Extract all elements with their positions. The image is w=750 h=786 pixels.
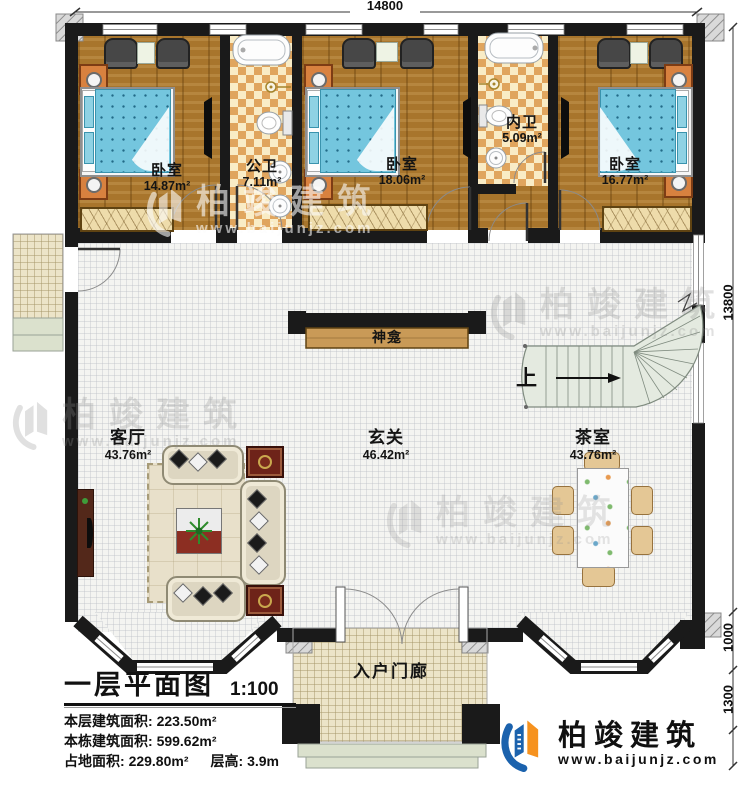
room-label-tea: 茶室 43.76m²: [553, 428, 633, 462]
chair: [631, 486, 653, 515]
stat-building-area: 本栋建筑面积: 599.62m²: [64, 731, 364, 751]
stat-pair: 占地面积: 229.80m²: [64, 751, 189, 771]
plan-title: 一层平面图: [64, 672, 214, 699]
staircase: [522, 294, 703, 409]
stat-label: 层高:: [211, 753, 244, 769]
title-underline-thin: [64, 707, 296, 708]
tv: [463, 97, 471, 159]
title-block: 一层平面图 1:100 本层建筑面积: 223.50m² 本栋建筑面积: 599…: [64, 672, 364, 771]
table-ornament-icon: [258, 594, 272, 608]
bed-pillow: [677, 132, 687, 164]
armchair: [104, 38, 138, 69]
stat-label: 本层建筑面积:: [64, 713, 153, 729]
plant-icon: [82, 498, 88, 504]
brand-logo: 柏竣建筑 www.baijunjz.com: [494, 716, 719, 772]
room-area: 18.06m²: [362, 173, 442, 187]
bed-pillow: [309, 96, 319, 128]
shrine-name: 神龛: [357, 329, 417, 345]
bed-pillow: [84, 132, 94, 164]
room-name: 玄关: [343, 428, 429, 448]
chair: [552, 526, 574, 555]
room-name: 茶室: [553, 428, 633, 448]
room-area: 46.42m²: [343, 448, 429, 462]
dimension-side: 13800: [721, 277, 736, 329]
tv-cabinet: [77, 489, 94, 577]
armchair: [597, 38, 631, 69]
room-name: 公卫: [232, 158, 292, 175]
room-area: 43.76m²: [88, 448, 168, 462]
stat-value: 599.62m²: [157, 733, 217, 749]
bed-pillow: [309, 132, 319, 164]
stat-pair: 层高: 3.9m: [211, 751, 279, 771]
armchair: [342, 38, 376, 69]
plant-icon: [177, 509, 221, 553]
room-name: 卧室: [585, 156, 665, 173]
bed-pillow: [84, 96, 94, 128]
stat-label: 本栋建筑面积:: [64, 733, 153, 749]
room-label-bedroom-right: 卧室 16.77m²: [585, 156, 665, 188]
room-name: 卧室: [362, 156, 442, 173]
chair: [552, 486, 574, 515]
room-label-inner-bath: 内卫 5.09m²: [494, 114, 550, 146]
lamp-icon: [86, 177, 102, 193]
dimension-porch-depth: 1000: [721, 616, 736, 660]
stat-value: 229.80m²: [129, 753, 189, 769]
tv: [87, 518, 93, 548]
stairs-up-label: 上: [516, 362, 537, 392]
room-area: 5.09m²: [494, 131, 550, 145]
wardrobe: [602, 206, 692, 232]
plan-scale: 1:100: [230, 680, 279, 699]
window-seat: [376, 42, 398, 62]
armchair: [156, 38, 190, 69]
lamp-icon: [311, 177, 327, 193]
dimension-steps-depth: 1300: [721, 678, 736, 722]
shrine-label: 神龛: [357, 329, 417, 345]
room-area: 14.87m²: [127, 179, 207, 193]
floor-plan: 柏竣建筑 www.baijunjz.com 柏竣建筑 www.baijunjz.…: [0, 0, 750, 786]
room-name: 客厅: [88, 428, 168, 448]
brand-name: 柏竣建筑: [558, 721, 719, 751]
room-label-foyer: 玄关 46.42m²: [343, 428, 429, 462]
room-label-bedroom-left: 卧室 14.87m²: [127, 162, 207, 194]
room-area: 43.76m²: [553, 448, 633, 462]
side-table: [246, 446, 284, 478]
title-underline: [64, 703, 296, 706]
tea-table: [577, 468, 629, 568]
lamp-icon: [86, 72, 102, 88]
lamp-icon: [671, 72, 687, 88]
room-label-public-bath: 公卫 7.11m²: [232, 158, 292, 190]
room-area: 7.11m²: [232, 175, 292, 189]
room-label-bedroom-mid: 卧室 18.06m²: [362, 156, 442, 188]
table-ornament-icon: [258, 455, 272, 469]
stat-floor-area: 本层建筑面积: 223.50m²: [64, 711, 364, 731]
room-name: 卧室: [127, 162, 207, 179]
tv: [561, 97, 569, 159]
window-seat: [137, 42, 155, 64]
side-table: [246, 585, 284, 616]
room-area: 16.77m²: [585, 173, 665, 187]
coffee-table: [176, 508, 222, 554]
dimension-top: 14800: [350, 0, 420, 13]
room-name: 内卫: [494, 114, 550, 131]
brand-logo-icon: [494, 716, 548, 772]
chair: [631, 526, 653, 555]
chair: [582, 565, 615, 587]
bed-pillow: [677, 96, 687, 128]
tv: [204, 97, 212, 159]
brand-url: www.baijunjz.com: [558, 751, 719, 767]
stat-value: 223.50m²: [157, 713, 217, 729]
lamp-icon: [311, 72, 327, 88]
stat-label: 占地面积:: [64, 753, 125, 769]
wardrobe: [80, 207, 174, 232]
window-seat: [630, 42, 648, 64]
wardrobe: [308, 204, 428, 231]
armchair: [400, 38, 434, 69]
room-label-living: 客厅 43.76m²: [88, 428, 168, 462]
stat-value: 3.9m: [247, 753, 279, 769]
stat-land-area: 占地面积: 229.80m² 层高: 3.9m: [64, 751, 364, 771]
